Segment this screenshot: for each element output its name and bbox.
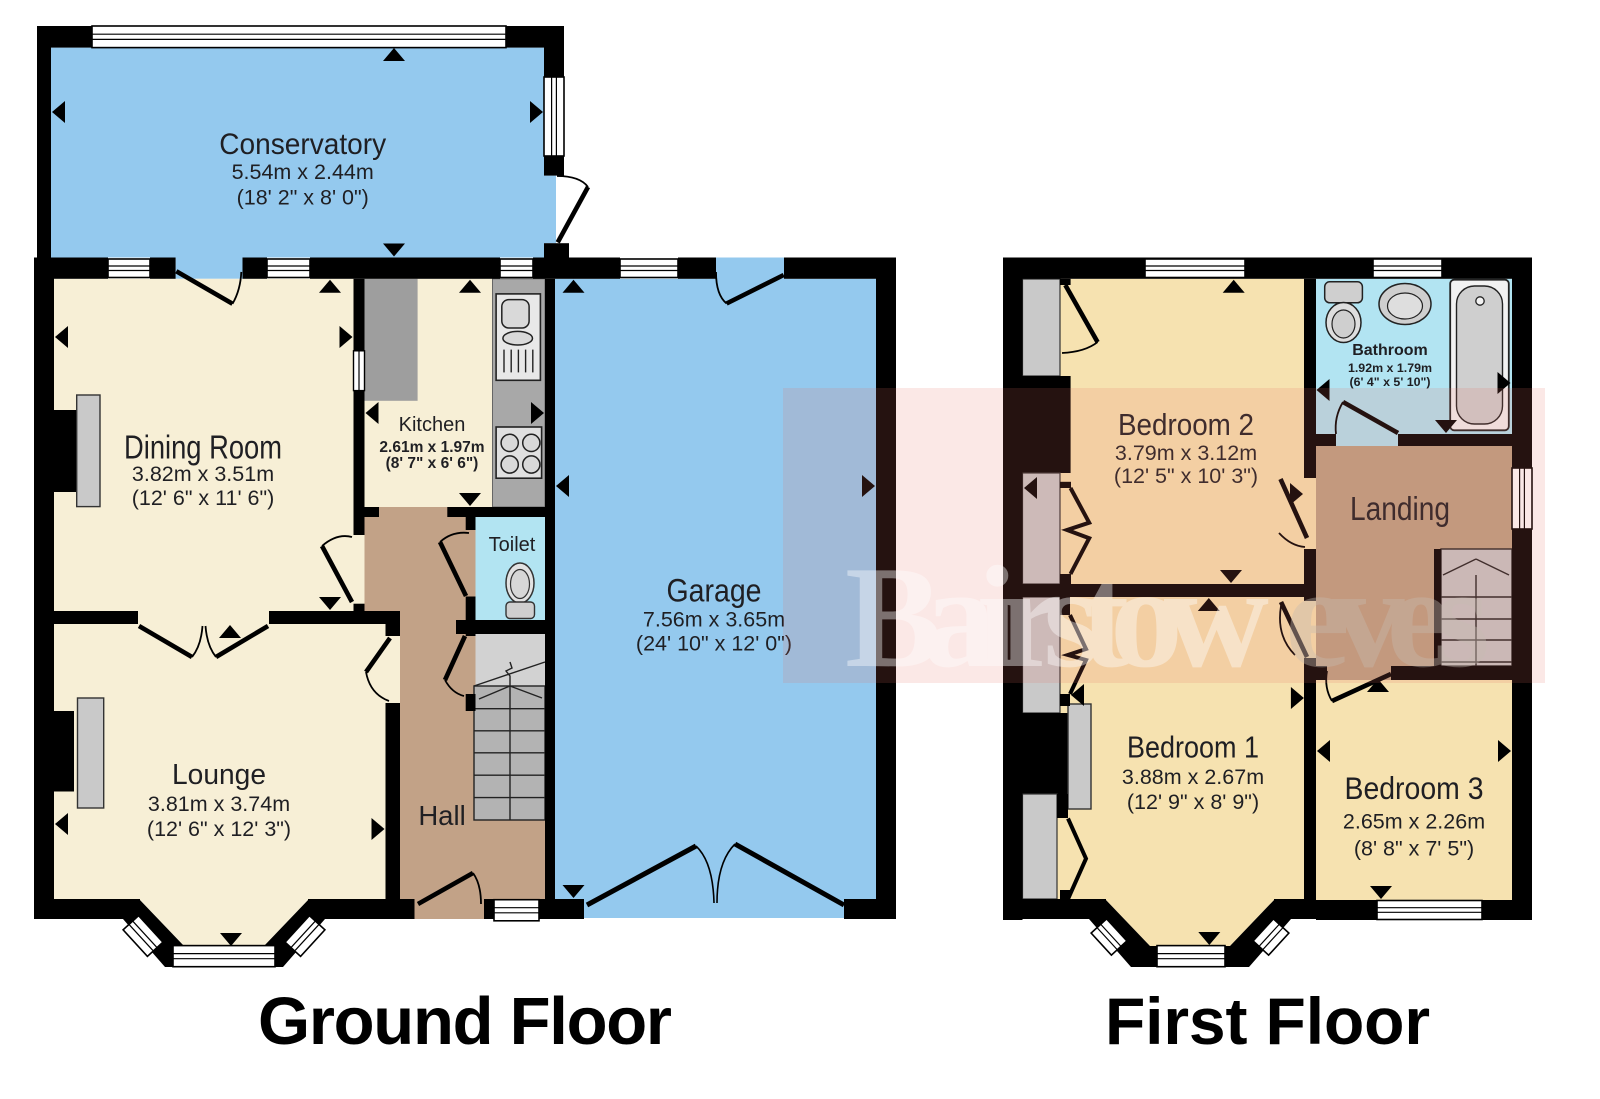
svg-text:7.56m x 3.65m: 7.56m x 3.65m xyxy=(643,608,785,632)
svg-text:(6' 4" x 5' 10"): (6' 4" x 5' 10") xyxy=(1349,375,1430,389)
svg-text:3.88m x 2.67m: 3.88m x 2.67m xyxy=(1122,765,1264,789)
svg-text:Bedroom 1: Bedroom 1 xyxy=(1127,730,1259,765)
svg-text:(12' 6" x 11' 6"): (12' 6" x 11' 6") xyxy=(132,486,275,510)
svg-text:(12' 6" x 12' 3"): (12' 6" x 12' 3") xyxy=(147,817,291,841)
svg-text:Bathroom: Bathroom xyxy=(1352,342,1428,359)
svg-text:Hall: Hall xyxy=(418,800,465,831)
svg-text:Lounge: Lounge xyxy=(172,759,266,791)
svg-text:(12' 9" x 8' 9"): (12' 9" x 8' 9") xyxy=(1127,790,1259,814)
svg-text:(8' 7" x 6' 6"): (8' 7" x 6' 6") xyxy=(386,455,479,472)
svg-text:2.65m x 2.26m: 2.65m x 2.26m xyxy=(1343,810,1485,834)
svg-text:3.81m x 3.74m: 3.81m x 3.74m xyxy=(148,792,290,816)
svg-text:5.54m x 2.44m: 5.54m x 2.44m xyxy=(232,160,374,184)
svg-text:(18' 2" x 8' 0"): (18' 2" x 8' 0") xyxy=(237,186,369,210)
svg-text:Bedroom 3: Bedroom 3 xyxy=(1345,770,1484,806)
svg-text:2.61m x 1.97m: 2.61m x 1.97m xyxy=(379,439,484,456)
svg-text:First Floor: First Floor xyxy=(1105,984,1430,1058)
svg-text:Conservatory: Conservatory xyxy=(219,128,386,161)
svg-text:eves: eves xyxy=(1285,536,1490,698)
svg-text:3.82m x 3.51m: 3.82m x 3.51m xyxy=(132,462,274,486)
svg-text:Toilet: Toilet xyxy=(489,534,536,556)
svg-text:(8' 8" x 7' 5"): (8' 8" x 7' 5") xyxy=(1354,837,1474,861)
svg-text:Kitchen: Kitchen xyxy=(399,414,466,436)
svg-text:1.92m x 1.79m: 1.92m x 1.79m xyxy=(1348,361,1432,375)
svg-text:Ground Floor: Ground Floor xyxy=(258,984,672,1059)
svg-text:Dining Room: Dining Room xyxy=(124,429,282,466)
svg-text:Bairstow: Bairstow xyxy=(845,536,1269,698)
svg-text:Garage: Garage xyxy=(667,572,762,608)
svg-text:(24' 10" x 12' 0"): (24' 10" x 12' 0") xyxy=(636,632,792,656)
